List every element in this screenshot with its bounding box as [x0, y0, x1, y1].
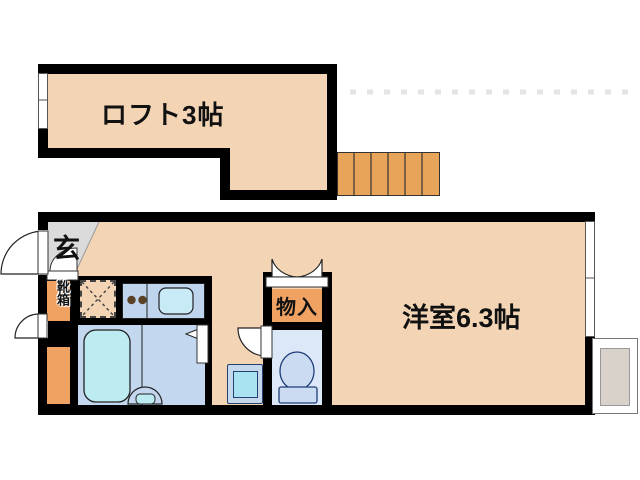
closet-label: 物入: [272, 291, 322, 320]
loft-window: [38, 73, 48, 129]
outdoor-unit: [600, 348, 630, 406]
main-room-window: [585, 221, 595, 337]
outer-wall-top: [38, 212, 595, 222]
closet-toilet-divider-wall: [263, 322, 332, 330]
washing-machine: [233, 371, 258, 398]
western-room-label: 洋室6.3帖: [402, 296, 521, 335]
kitchen-counter: [122, 283, 205, 319]
side-door-swing: [15, 314, 39, 338]
loft-wall-top: [38, 64, 337, 74]
floor-plan: ロフト3帖 洋室6.3帖 玄 物入 靴箱: [0, 0, 640, 480]
closet-wall-left: [263, 272, 272, 405]
refrigerator-space: [80, 280, 116, 318]
bathroom-floor: [78, 325, 205, 405]
toilet-room-floor: [272, 330, 322, 405]
loft-floor-extension: [230, 148, 327, 190]
loft-wall-right: [327, 64, 337, 200]
loft-room-label: ロフト3帖: [101, 95, 224, 132]
loft-wall-bottom-right: [220, 190, 337, 200]
water-heater-box: [47, 347, 70, 404]
shoe-box-label: 靴箱: [47, 280, 70, 306]
entrance-label: 玄: [53, 227, 80, 266]
loft-wall-bottom-left: [38, 148, 230, 158]
staircase: [337, 152, 440, 196]
entrance-opening: [38, 230, 48, 275]
closet-wall-right: [322, 272, 332, 405]
